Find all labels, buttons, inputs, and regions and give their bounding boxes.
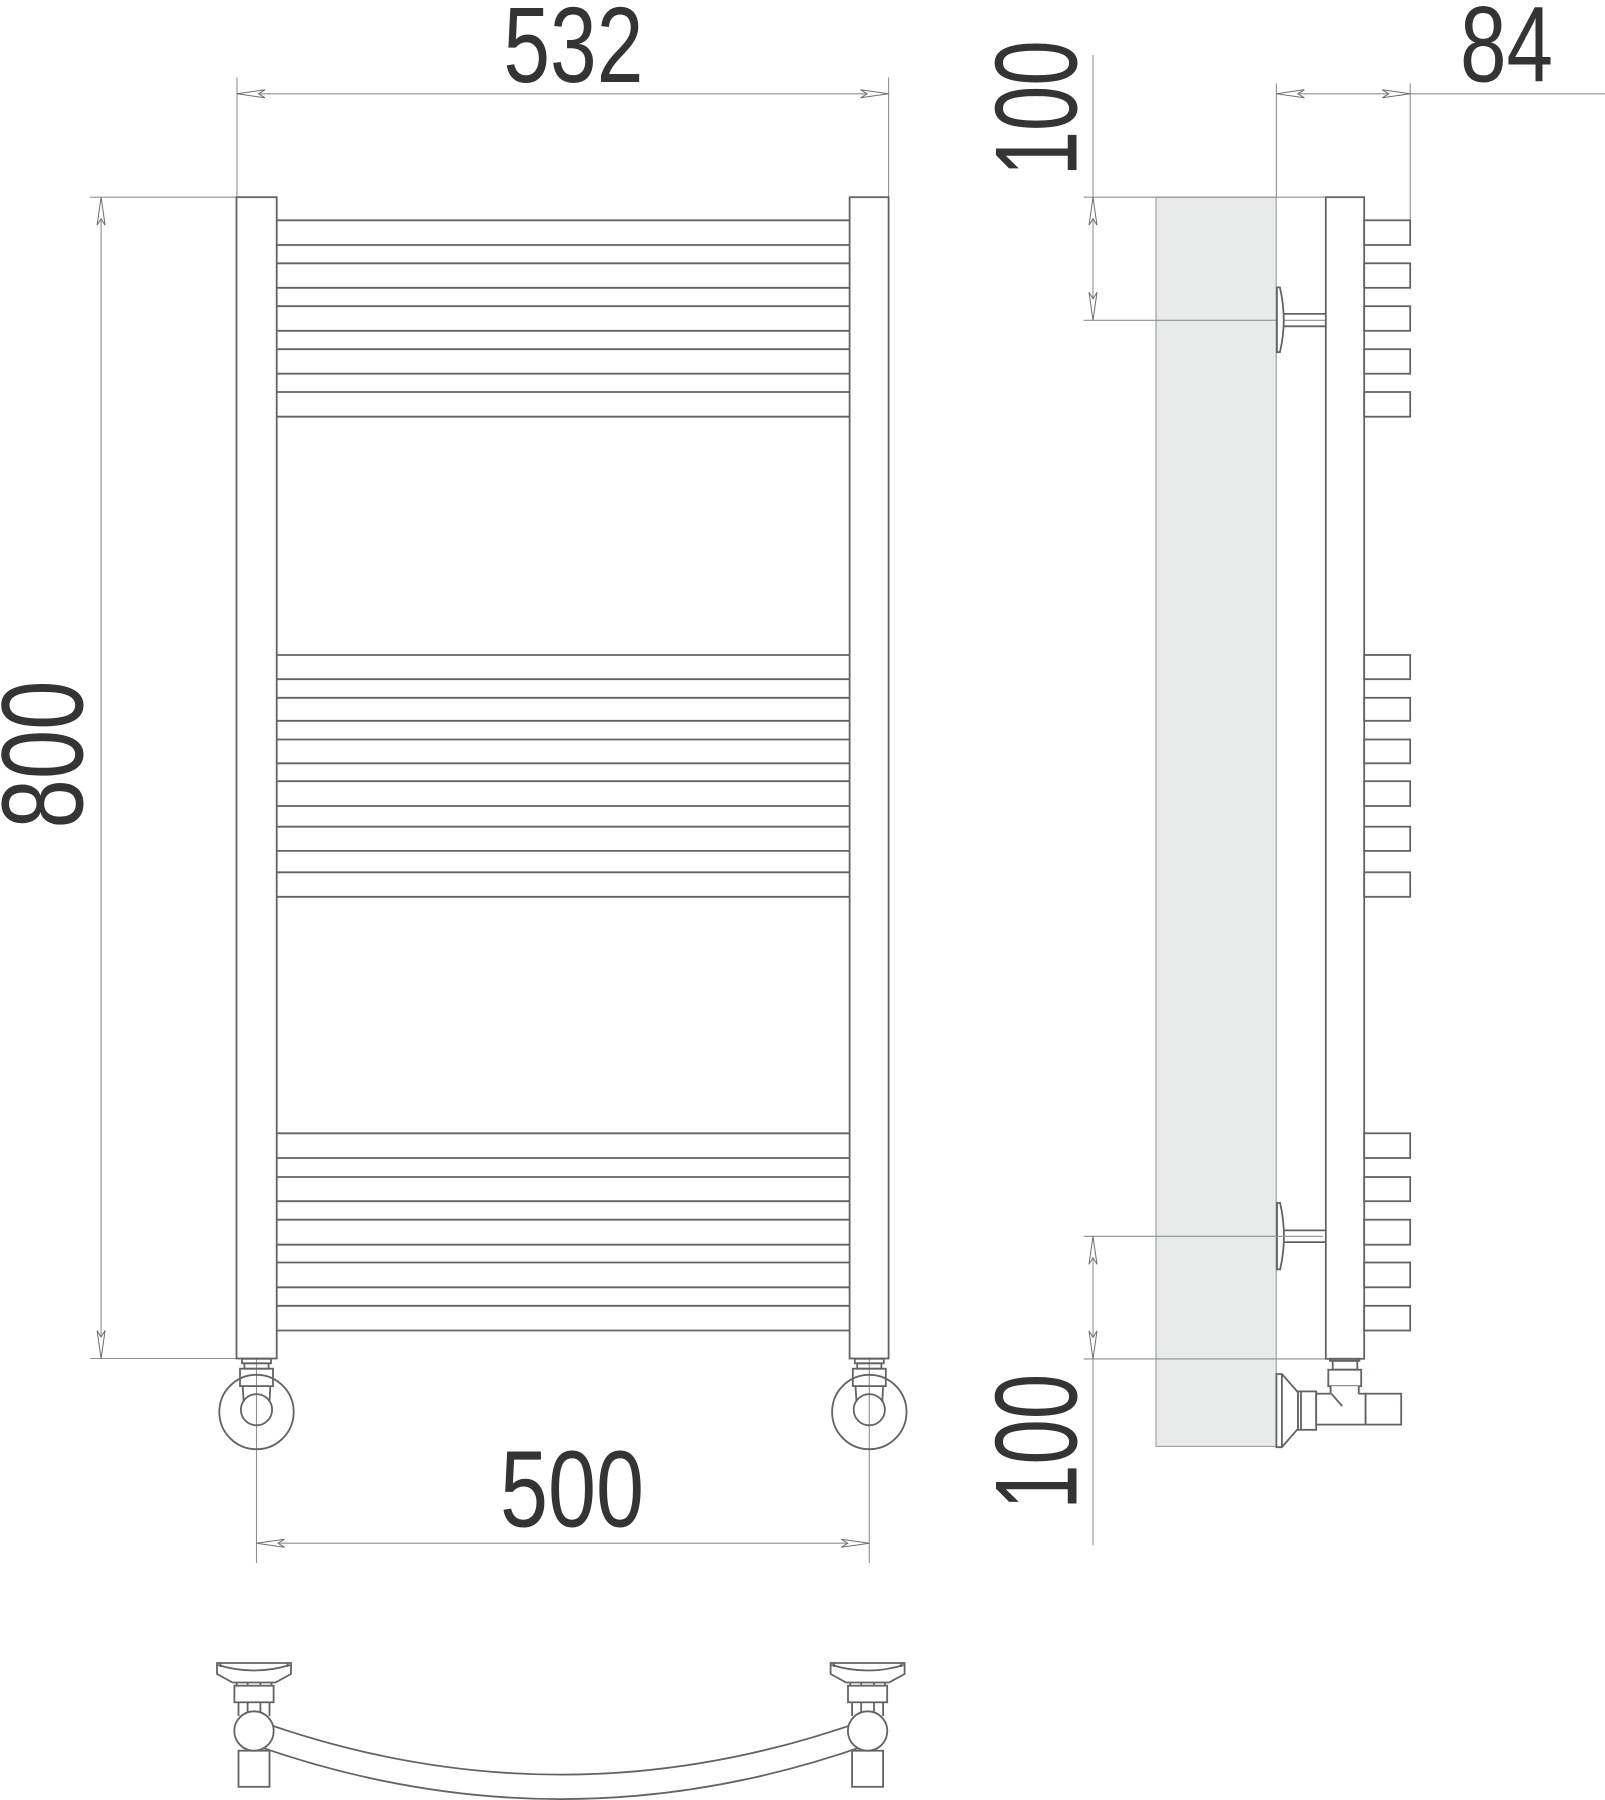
svg-text:100: 100 (970, 1374, 1101, 1510)
svg-text:84: 84 (1460, 0, 1553, 105)
svg-text:100: 100 (970, 40, 1101, 176)
svg-text:500: 500 (500, 1429, 644, 1551)
svg-text:532: 532 (503, 0, 643, 105)
svg-text:800: 800 (0, 681, 108, 829)
